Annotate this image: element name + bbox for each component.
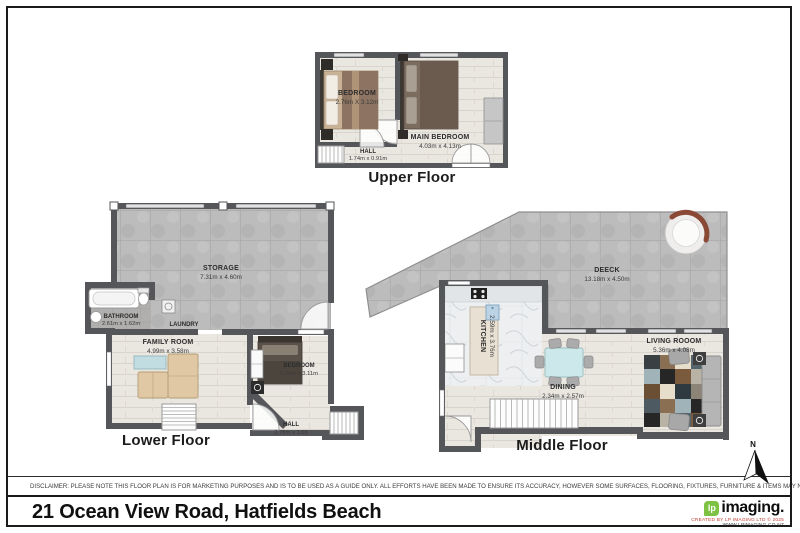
door-arc [253,404,279,430]
bathtub [89,289,139,308]
coffee-table [134,356,166,369]
deck-area [366,212,727,332]
wardrobe [484,98,503,144]
patchwork-rug [644,355,706,427]
middle-floor-plan: DEECK 13.18m x 4.50m KITCHEN 2.59m x 3.7… [366,212,729,454]
room-label-upper-hall: HALL [360,149,376,155]
room-dims-kitchen: 2.59m x 3.76m [488,315,495,357]
disclaimer-text: DISCLAIMER: PLEASE NOTE THIS FLOOR PLAN … [30,483,800,490]
toilet [138,288,149,305]
door-arc [301,302,328,329]
room-label-family-room: FAMILY ROOM [143,339,194,346]
stool [251,381,264,394]
nightstand [398,54,408,61]
room-label-bathroom: BATHROOM [104,314,139,320]
lower-stairs [162,404,196,430]
room-dims-family-room: 4.99m x 3.58m [147,348,189,355]
room-label-laundry: LAUNDRY [169,322,198,328]
room-label-storage: STORAGE [203,265,239,272]
room-label-lower-hall: HALL [283,422,299,428]
sofa [702,356,721,426]
disclaimer-bar: DISCLAIMER: PLEASE NOTE THIS FLOOR PLAN … [8,476,792,495]
nightstand [321,129,333,140]
side-table [693,352,706,365]
room-dims-living-room: 5.36m x 4.08m [653,347,695,354]
upper-floor-plan: BEDROOM 2.76m X 3.12m MAIN BEDROOM 4.03m… [315,52,508,186]
floor-plans-canvas: BEDROOM 2.76m X 3.12m MAIN BEDROOM 4.03m… [0,0,800,533]
room-label-upper-bedroom: BEDROOM [338,90,376,97]
room-dims-lower-bedroom: 2.90m x 3.11m [280,371,318,377]
wardrobe [251,350,263,378]
lower-floor-title: Lower Floor [122,432,210,449]
room-dims-main-bedroom: 4.03m x 4.13m [419,143,461,150]
fridge [445,344,464,372]
armchair [668,413,689,431]
kitchen-sink [486,305,499,320]
logo-wordmark: imaging. [721,499,784,517]
nightstand [321,59,333,70]
page-border [6,6,792,527]
room-label-kitchen: KITCHEN [479,320,486,353]
side-table [693,414,706,427]
door-arc [471,144,490,163]
property-address: 21 Ocean View Road, Hatfields Beach [32,501,381,524]
room-dims-upper-hall: 1.74m x 0.91m [349,156,388,162]
door-arc [373,120,397,144]
lp-logo-icon: lp [704,501,719,516]
armchair [668,348,689,365]
room-label-dining: DINING [550,384,576,391]
double-bed [320,70,378,130]
room-dims-lower-hall: 2.78m x 1.65 [274,430,308,436]
door-arc [452,144,471,163]
room-label-deck: DEECK [594,267,620,274]
middle-stairs [490,399,578,428]
room-dims-storage: 7.31m x 4.60m [200,274,242,281]
room-label-lower-bedroom: BEDROOM [283,363,314,369]
exterior-stairs [330,412,358,434]
north-label: N [750,440,756,449]
door-arc [445,416,471,442]
upper-floor-title: Upper Floor [368,169,455,186]
kitchen-counter [445,286,542,302]
room-label-main-bedroom: MAIN BEDROOM [411,134,470,141]
nightstand [398,130,408,139]
round-daybed [665,212,707,254]
door-arc [360,123,384,147]
corner-sofa [138,354,198,398]
bed [258,336,302,384]
basin [91,312,102,323]
lower-floor-plan: STORAGE 7.31m x 4.60m BATHROOM 2.61m x 1… [85,202,364,449]
main-double-bed [400,60,458,130]
upper-stairs [318,146,344,163]
dining-table [535,338,593,386]
stove-cooktop [471,288,487,299]
floor-plan-page: { "page": {"width": 800, "height": 533},… [0,0,800,533]
title-bar: 21 Ocean View Road, Hatfields Beach [8,495,792,527]
logo-website: WWW.LPIMAGING.CO.NZ [691,523,784,528]
kitchen-island [470,307,498,375]
room-dims-bathroom: 2.61m x 1.62m [102,321,141,327]
lp-imaging-logo: lp imaging. CREATED BY LP IMAGING LTD © … [691,499,784,528]
middle-floor-title: Middle Floor [516,437,608,454]
washing-machine [162,300,175,313]
room-label-living-room: LIVING ROOOM [647,338,702,345]
room-dims-dining: 2.34m x 2.57m [542,393,584,400]
room-dims-upper-bedroom: 2.76m X 3.12m [336,99,379,106]
room-dims-deck: 13.18m x 4.50m [584,276,629,283]
